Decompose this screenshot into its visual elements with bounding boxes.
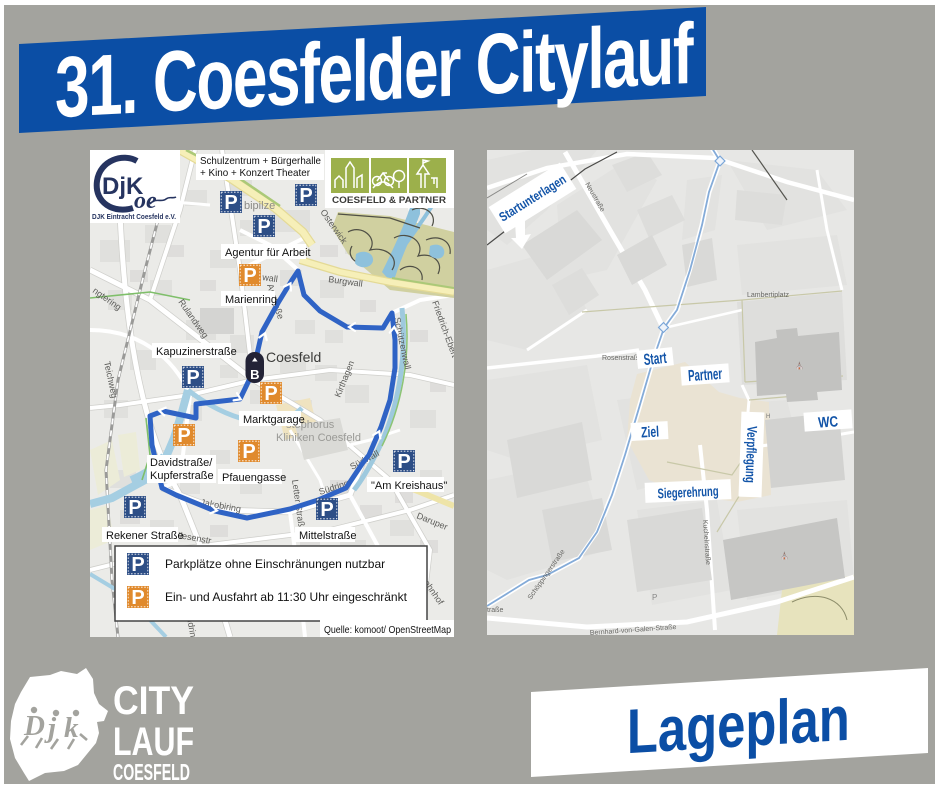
- svg-text:Agentur für Arbeit: Agentur für Arbeit: [225, 247, 311, 259]
- svg-text:Quelle: komoot/ OpenStreetMap: Quelle: komoot/ OpenStreetMap: [324, 624, 451, 636]
- svg-text:⛪: ⛪: [795, 361, 804, 370]
- svg-text:Rekener Straße: Rekener Straße: [106, 530, 184, 542]
- svg-text:P: P: [299, 185, 312, 207]
- svg-text:Ein- und Ausfahrt ab 11:30 Uhr: Ein- und Ausfahrt ab 11:30 Uhr eingeschr…: [165, 590, 408, 604]
- svg-text:P: P: [128, 497, 141, 519]
- svg-text:k: k: [64, 712, 79, 744]
- svg-text:COESFELD: COESFELD: [113, 759, 190, 785]
- svg-text:"Am Kreishaus": "Am Kreishaus": [371, 480, 447, 492]
- svg-text:Marienring: Marienring: [225, 294, 277, 306]
- svg-text:Rosenstraße: Rosenstraße: [602, 355, 642, 362]
- svg-text:Lambertiplatz: Lambertiplatz: [747, 292, 790, 299]
- svg-text:Pfauengasse: Pfauengasse: [222, 472, 286, 484]
- svg-text:Mittelstraße: Mittelstraße: [299, 530, 356, 542]
- svg-text:traße: traße: [487, 607, 503, 614]
- svg-text:P: P: [242, 441, 255, 463]
- svg-text:Kapuzinerstraße: Kapuzinerstraße: [156, 346, 237, 358]
- svg-text:P: P: [243, 265, 256, 287]
- svg-text:P: P: [131, 587, 144, 609]
- svg-text:Partner: Partner: [688, 366, 723, 385]
- svg-text:DJK Eintracht Coesfeld e.V.: DJK Eintracht Coesfeld e.V.: [92, 212, 176, 221]
- svg-text:Marktgarage: Marktgarage: [243, 414, 305, 426]
- svg-text:H: H: [766, 414, 770, 420]
- svg-text:Verpflegung: Verpflegung: [742, 426, 760, 484]
- svg-text:bipilze: bipilze: [244, 200, 275, 212]
- svg-text:P: P: [652, 593, 657, 602]
- svg-text:Kupferstraße: Kupferstraße: [150, 470, 214, 482]
- svg-text:P: P: [131, 554, 144, 576]
- svg-text:P: P: [224, 192, 237, 214]
- svg-text:Kliniken Coesfeld: Kliniken Coesfeld: [276, 432, 361, 444]
- svg-text:COESFELD & PARTNER: COESFELD & PARTNER: [332, 195, 447, 205]
- svg-text:P: P: [397, 451, 410, 473]
- svg-text:P: P: [264, 383, 277, 405]
- svg-text:CITY: CITY: [113, 679, 194, 723]
- svg-text:P: P: [186, 367, 199, 389]
- svg-text:P: P: [177, 425, 190, 447]
- svg-text:Ziel: Ziel: [641, 424, 660, 442]
- svg-text:B: B: [250, 367, 259, 382]
- svg-text:Parkplätze ohne Einschränungen: Parkplätze ohne Einschränungen nutzbar: [165, 557, 385, 571]
- svg-text:Schulzentrum + Bürgerhalle: Schulzentrum + Bürgerhalle: [200, 155, 321, 167]
- svg-text:Siegerehrung: Siegerehrung: [657, 483, 719, 502]
- svg-text:Start: Start: [643, 350, 668, 369]
- svg-text:⛪: ⛪: [780, 551, 789, 560]
- svg-text:Coesfeld: Coesfeld: [266, 349, 321, 365]
- svg-text:P: P: [257, 216, 270, 238]
- svg-text:LAUF: LAUF: [113, 720, 194, 764]
- svg-text:WC: WC: [818, 413, 839, 431]
- svg-text:+ Kino + Konzert Theater: + Kino + Konzert Theater: [200, 167, 310, 179]
- svg-text:P: P: [320, 499, 333, 521]
- svg-text:Davidstraße/: Davidstraße/: [150, 457, 213, 469]
